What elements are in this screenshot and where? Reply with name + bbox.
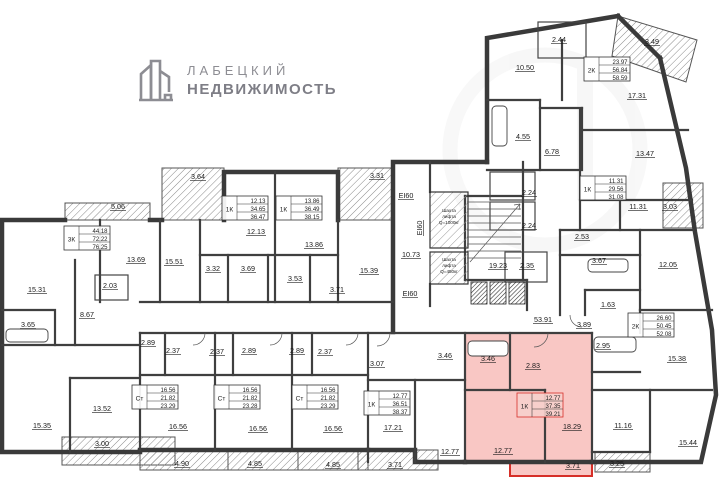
svg-text:3.32: 3.32: [206, 264, 220, 273]
room-area-label: 2.24: [521, 221, 537, 230]
room-area-label: 12.13: [246, 227, 266, 236]
room-area-label: 4.85: [247, 459, 263, 468]
room-area-label: 15.38: [667, 354, 687, 363]
floor-plan: 5.0613.6915.512.0315.318.673.653.643.311…: [0, 0, 720, 477]
apartment-type: 2К: [632, 324, 640, 331]
room-area-label: 15.39: [359, 266, 379, 275]
room-area-label: 2.83: [525, 361, 541, 370]
room-area-label: 3.49: [644, 37, 660, 46]
svg-text:17.31: 17.31: [628, 91, 646, 100]
apartment-area-value: 16.56: [160, 388, 176, 394]
room-area-label: 3.03: [662, 202, 678, 211]
apartment-type: Ст: [136, 396, 144, 403]
svg-text:15.31: 15.31: [28, 285, 46, 294]
room-area-label: 3.89: [576, 320, 592, 329]
room-area-label: 16.56: [248, 424, 268, 433]
room-area-label: 12.77: [493, 446, 513, 455]
elevator-shaft-label: ШахталифтаQ=450кг: [440, 257, 458, 274]
svg-text:17.21: 17.21: [384, 423, 402, 432]
svg-text:4.55: 4.55: [516, 132, 530, 141]
svg-text:19.23: 19.23: [489, 261, 507, 270]
room-area-label: 3.71: [387, 460, 403, 469]
apartment-area-value: 38.15: [304, 215, 320, 221]
room-area-label: 4.55: [515, 132, 531, 141]
svg-text:15.38: 15.38: [668, 354, 686, 363]
svg-text:3.71: 3.71: [566, 461, 580, 470]
room-area-label: 3.31: [369, 171, 385, 180]
room-area-label: 18.29: [562, 422, 582, 431]
room-area-label: 2.03: [102, 281, 118, 290]
room-area-label: 13.52: [92, 404, 112, 413]
apartment-type: Ст: [218, 396, 226, 403]
svg-text:10.73: 10.73: [402, 250, 420, 259]
apartment-info-box[interactable]: 3К44.1872.2276.25: [64, 226, 110, 251]
svg-text:15.51: 15.51: [165, 257, 183, 266]
svg-text:13.86: 13.86: [305, 240, 323, 249]
svg-text:3.64: 3.64: [191, 172, 205, 181]
svg-text:EI60: EI60: [403, 289, 418, 298]
apartment-info-box[interactable]: Ст16.5621.8223.29: [292, 385, 338, 410]
svg-text:3.07: 3.07: [370, 359, 384, 368]
svg-text:3.31: 3.31: [370, 171, 384, 180]
room-area-label: 12.77: [440, 447, 460, 456]
bathtub-icon: [492, 106, 507, 146]
room-area-label: 53.91: [533, 315, 553, 324]
apartment-area-value: 58.59: [612, 76, 628, 82]
apartment-info-box-highlighted[interactable]: 1К12.7737.3539.21: [517, 393, 563, 418]
svg-text:10.50: 10.50: [516, 63, 534, 72]
svg-text:12.77: 12.77: [494, 446, 512, 455]
svg-text:2.24: 2.24: [522, 221, 536, 230]
room-area-label: 2.37: [317, 347, 333, 356]
svg-text:1.63: 1.63: [601, 300, 615, 309]
agency-logo: ЛАБЕЦКИЙ НЕДВИЖИМОСТЬ: [136, 54, 337, 106]
svg-text:Q=450кг: Q=450кг: [440, 269, 458, 274]
apartment-area-value: 16.56: [320, 388, 336, 394]
room-area-label: EI60: [402, 289, 418, 298]
svg-text:3.69: 3.69: [241, 264, 255, 273]
svg-text:2.53: 2.53: [575, 232, 589, 241]
room-area-label: 3.46: [480, 354, 496, 363]
room-area-label: 11.31: [628, 202, 648, 211]
apartment-area-value: 39.21: [545, 412, 561, 418]
apartment-area-value: 23.29: [160, 404, 176, 410]
apartment-area-value: 16.56: [242, 388, 258, 394]
svg-text:3.46: 3.46: [481, 354, 495, 363]
room-area-label: 3.00: [94, 439, 110, 448]
apartment-area-value: 23.29: [320, 404, 336, 410]
room-area-label: 15.44: [678, 438, 698, 447]
apartment-info-box[interactable]: Ст16.5621.8223.29: [132, 385, 178, 410]
svg-text:2.37: 2.37: [318, 347, 332, 356]
room-area-label: 13.69: [126, 255, 146, 264]
svg-text:3.67: 3.67: [592, 256, 606, 265]
svg-text:13.47: 13.47: [636, 149, 654, 158]
room-area-label: 3.07: [369, 359, 385, 368]
room-area-label: 1.63: [600, 300, 616, 309]
svg-text:11.16: 11.16: [614, 421, 631, 430]
svg-text:EI60: EI60: [399, 191, 414, 200]
svg-text:15.39: 15.39: [360, 266, 378, 275]
apartment-area-value: 12.77: [392, 394, 408, 400]
apartment-type: 1К: [584, 187, 592, 194]
room-area-label: 17.31: [627, 91, 647, 100]
svg-text:3.89: 3.89: [577, 320, 591, 329]
svg-text:2.89: 2.89: [242, 346, 256, 355]
svg-text:16.56: 16.56: [249, 424, 267, 433]
room-area-label: 3.69: [240, 264, 256, 273]
room-area-label: 2.35: [519, 261, 535, 270]
svg-text:2.89: 2.89: [290, 346, 304, 355]
room-area-label: 2.89: [140, 338, 156, 347]
apartment-area-value: 12.77: [545, 396, 561, 402]
apartment-area-value: 37.35: [545, 404, 561, 410]
room-area-label: 2.89: [241, 346, 257, 355]
apartment-info-box[interactable]: 1К13.8636.4938.15: [276, 196, 322, 221]
apartment-area-value: 23.97: [612, 60, 628, 66]
svg-text:лифта: лифта: [442, 214, 456, 219]
apartment-area-value: 34.65: [250, 207, 266, 213]
room-area-label: 3.71: [565, 461, 581, 470]
svg-text:4.85: 4.85: [326, 460, 340, 469]
svg-text:8.67: 8.67: [80, 310, 94, 319]
room-area-label: 3.65: [20, 320, 36, 329]
svg-text:Q=1000кг: Q=1000кг: [439, 220, 459, 225]
svg-text:12.13: 12.13: [247, 227, 265, 236]
apartment-info-box[interactable]: 1К12.7736.5138.37: [364, 391, 410, 416]
apartment-area-value: 50.45: [656, 324, 672, 330]
svg-text:2.44: 2.44: [552, 35, 566, 44]
svg-text:3.65: 3.65: [21, 320, 35, 329]
svg-text:3.49: 3.49: [645, 37, 659, 46]
room-area-label: 3.53: [287, 274, 303, 283]
apartment-area-value: 21.82: [242, 396, 258, 402]
bathtub-icon: [6, 329, 48, 342]
svg-text:Шахта: Шахта: [442, 208, 456, 213]
apartment-area-value: 13.86: [304, 199, 320, 205]
room-area-label: 4.85: [325, 460, 341, 469]
room-area-label: 16.56: [323, 424, 343, 433]
room-area-label: 8.67: [79, 310, 95, 319]
svg-text:2.35: 2.35: [520, 261, 534, 270]
svg-text:лифта: лифта: [442, 263, 456, 268]
room-area-label: 4.90: [174, 459, 190, 468]
apartment-area-value: 21.82: [320, 396, 336, 402]
room-area-label: 15.31: [27, 285, 47, 294]
svg-text:53.91: 53.91: [534, 315, 552, 324]
room-area-label: 15.51: [164, 257, 184, 266]
svg-text:2.24: 2.24: [522, 188, 536, 197]
svg-text:3.03: 3.03: [663, 202, 677, 211]
apartment-type: 1К: [280, 207, 288, 214]
apartment-type: 1К: [226, 207, 234, 214]
room-area-label: EI60: [415, 220, 424, 236]
svg-text:2.03: 2.03: [103, 281, 117, 290]
svg-text:5.06: 5.06: [111, 202, 125, 211]
apartment-area-value: 72.22: [92, 237, 108, 243]
room-area-label: 12.05: [658, 260, 678, 269]
apartment-area-value: 23.28: [242, 404, 258, 410]
apartment-area-value: 36.51: [392, 402, 408, 408]
room-area-label: 3.32: [205, 264, 221, 273]
agency-logo-building-icon: [136, 54, 176, 106]
room-area-label: 5.06: [110, 202, 126, 211]
svg-text:2.95: 2.95: [596, 341, 610, 350]
svg-text:15.35: 15.35: [33, 421, 51, 430]
apartment-area-value: 26.60: [656, 316, 672, 322]
svg-text:2.89: 2.89: [141, 338, 155, 347]
apartment-area-value: 52.08: [656, 332, 672, 338]
svg-text:15.44: 15.44: [679, 438, 697, 447]
svg-text:3.46: 3.46: [438, 351, 452, 360]
apartment-area-value: 31.08: [608, 195, 624, 201]
apartment-area-value: 36.49: [304, 207, 320, 213]
room-area-label: 3.25: [609, 459, 625, 468]
room-area-label: 19.23: [488, 261, 508, 270]
room-area-label: 2.89: [289, 346, 305, 355]
apartment-area-value: 56.84: [612, 68, 628, 74]
svg-text:Шахта: Шахта: [442, 257, 456, 262]
room-area-label: 2.37: [165, 346, 181, 355]
apartment-area-value: 44.18: [92, 229, 108, 235]
apartment-type: 1К: [368, 402, 376, 409]
apartment-type: 3К: [68, 237, 76, 244]
svg-text:4.85: 4.85: [248, 459, 262, 468]
room-area-label: 15.35: [32, 421, 52, 430]
svg-text:3.00: 3.00: [95, 439, 109, 448]
svg-text:13.52: 13.52: [93, 404, 111, 413]
apartment-area-value: 38.37: [392, 410, 408, 416]
apartment-info-box[interactable]: 1К12.1334.6536.47: [222, 196, 268, 221]
apartment-area-value: 11.31: [609, 179, 624, 185]
svg-text:11.31: 11.31: [629, 202, 646, 211]
apartment-type: 2К: [588, 68, 596, 75]
apartment-info-box[interactable]: 2К26.6050.4552.08: [628, 313, 674, 338]
apartment-area-value: 21.82: [160, 396, 176, 402]
svg-text:3.53: 3.53: [288, 274, 302, 283]
room-area-label: 10.50: [515, 63, 535, 72]
apartment-type: 1К: [521, 404, 529, 411]
svg-text:12.77: 12.77: [441, 447, 459, 456]
svg-text:16.56: 16.56: [169, 422, 187, 431]
room-area-label: 2.95: [595, 341, 611, 350]
svg-text:13.69: 13.69: [127, 255, 145, 264]
apartment-area-value: 12.13: [250, 199, 266, 205]
room-area-label: 2.53: [574, 232, 590, 241]
apartment-type: Ст: [296, 396, 304, 403]
room-area-label: 13.47: [635, 149, 655, 158]
svg-text:3.71: 3.71: [330, 285, 344, 294]
svg-text:6.78: 6.78: [545, 147, 559, 156]
room-area-label: 3.71: [329, 285, 345, 294]
svg-text:2.37: 2.37: [166, 346, 180, 355]
room-area-label: 13.86: [304, 240, 324, 249]
svg-text:4.90: 4.90: [175, 459, 189, 468]
agency-subtitle: НЕДВИЖИМОСТЬ: [187, 81, 337, 98]
apartment-info-box[interactable]: 1К11.3129.5631.08: [580, 176, 626, 201]
room-area-label: 16.56: [168, 422, 188, 431]
apartment-area-value: 76.25: [92, 245, 108, 251]
svg-text:3.71: 3.71: [388, 460, 402, 469]
room-area-label: 17.21: [383, 423, 403, 432]
room-area-label: 10.73: [401, 250, 421, 259]
apartment-info-box[interactable]: Ст16.5621.8223.28: [214, 385, 260, 410]
svg-text:2.83: 2.83: [526, 361, 540, 370]
svg-text:EI60: EI60: [415, 221, 424, 236]
room-area-label: 2.37: [209, 347, 225, 356]
agency-name: ЛАБЕЦКИЙ: [187, 63, 337, 78]
room-area-label: 2.24: [521, 188, 537, 197]
svg-text:3.25: 3.25: [610, 459, 624, 468]
room-area-label: 3.64: [190, 172, 206, 181]
svg-text:18.29: 18.29: [563, 422, 581, 431]
room-area-label: 3.46: [437, 351, 453, 360]
room-area-label: 6.78: [544, 147, 560, 156]
apartment-info-box[interactable]: 2К23.9756.8458.59: [584, 57, 630, 82]
room-area-label: 2.44: [551, 35, 567, 44]
svg-text:12.05: 12.05: [659, 260, 677, 269]
apartment-area-value: 36.47: [250, 215, 266, 221]
room-area-label: EI60: [398, 191, 414, 200]
apartment-area-value: 29.56: [608, 187, 624, 193]
svg-text:16.56: 16.56: [324, 424, 342, 433]
room-area-label: 3.67: [591, 256, 607, 265]
room-area-label: 11.16: [613, 421, 633, 430]
svg-text:2.37: 2.37: [210, 347, 224, 356]
